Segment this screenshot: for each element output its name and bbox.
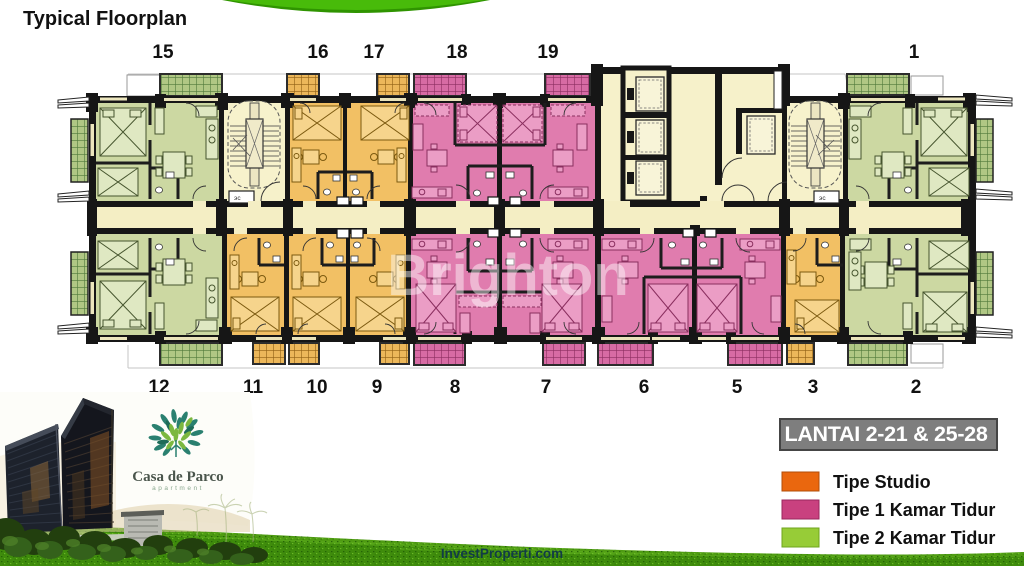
svg-text:Typical Floorplan: Typical Floorplan <box>23 8 187 30</box>
svg-text:19: 19 <box>537 42 558 63</box>
svg-text:6: 6 <box>639 377 650 398</box>
svg-text:apartment: apartment <box>152 485 204 492</box>
svg-text:эс: эс <box>234 195 241 202</box>
svg-text:7: 7 <box>541 377 552 398</box>
svg-text:3: 3 <box>808 377 819 398</box>
svg-text:9: 9 <box>372 377 383 398</box>
svg-text:8: 8 <box>450 377 461 398</box>
svg-text:Brighton: Brighton <box>387 243 629 308</box>
svg-text:10: 10 <box>306 377 327 398</box>
svg-text:15: 15 <box>152 42 174 63</box>
svg-text:InvestProperti.com: InvestProperti.com <box>441 546 563 561</box>
svg-text:1: 1 <box>909 42 920 63</box>
svg-text:5: 5 <box>732 377 743 398</box>
svg-text:LANTAI 2-21 & 25-28: LANTAI 2-21 & 25-28 <box>785 422 988 446</box>
svg-text:17: 17 <box>363 42 384 63</box>
svg-text:Casa de Parco: Casa de Parco <box>132 469 223 485</box>
svg-text:Tipe Studio: Tipe Studio <box>833 472 931 492</box>
svg-text:16: 16 <box>307 42 328 63</box>
svg-text:2: 2 <box>911 377 922 398</box>
svg-text:Tipe 1 Kamar Tidur: Tipe 1 Kamar Tidur <box>833 500 995 520</box>
svg-text:эс: эс <box>819 195 826 202</box>
svg-text:Tipe 2 Kamar Tidur: Tipe 2 Kamar Tidur <box>833 528 995 548</box>
svg-text:18: 18 <box>446 42 467 63</box>
